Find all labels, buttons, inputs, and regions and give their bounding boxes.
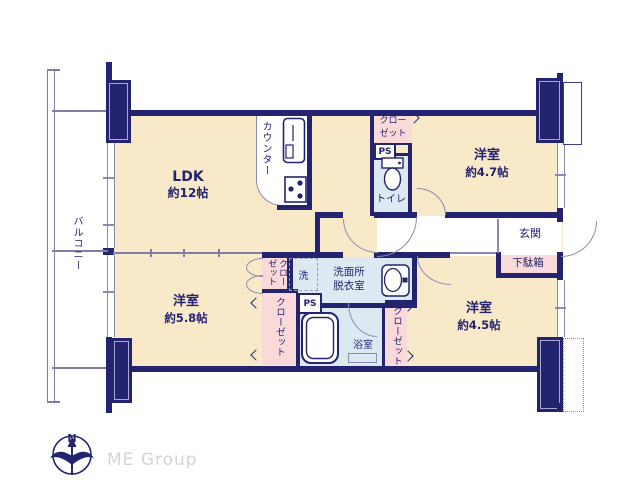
partition-tick bbox=[218, 249, 220, 257]
washroom-line2: 脱衣室 bbox=[318, 280, 380, 294]
brand-logo-text: ME Group bbox=[107, 450, 198, 470]
window bbox=[107, 255, 115, 337]
wall-segment bbox=[382, 303, 385, 366]
pillar bbox=[106, 80, 131, 143]
compass-north-icon: N bbox=[46, 428, 98, 480]
room-bedroom-se-name: 洋室 bbox=[429, 301, 529, 318]
closet-sw-long-label: クローゼット bbox=[272, 297, 286, 357]
room-ldk-label: LDK 約12帖 bbox=[138, 168, 238, 202]
balcony-outer-rail bbox=[47, 70, 55, 403]
balcony-label: バルコニー bbox=[69, 216, 84, 271]
balcony-line bbox=[47, 401, 60, 403]
room-bedroom-sw-label: 洋室 約5.8帖 bbox=[136, 294, 236, 326]
washbasin-icon bbox=[381, 264, 411, 298]
pillar bbox=[536, 78, 563, 143]
corridor-edge-line bbox=[450, 252, 496, 254]
window-tick bbox=[555, 307, 566, 309]
window-tick bbox=[103, 177, 114, 179]
wall-segment bbox=[408, 143, 412, 216]
bathtub-icon bbox=[300, 311, 340, 365]
shoe-cabinet-label: 下駄箱 bbox=[498, 257, 558, 271]
window bbox=[557, 280, 565, 337]
wall-segment bbox=[445, 212, 563, 218]
window bbox=[107, 143, 115, 248]
floorplan-canvas: PS PS 洗 LDK 約12帖 洋室 約4.7帖 bbox=[0, 0, 640, 480]
room-ldk-size: 約12帖 bbox=[138, 186, 238, 202]
room-bedroom-ne-label: 洋室 約4.7帖 bbox=[432, 148, 542, 180]
washer-space: 洗 bbox=[289, 258, 318, 291]
toilet-icon bbox=[380, 157, 406, 193]
entrance-label: 玄関 bbox=[500, 227, 560, 241]
closet-ne-label: クロー ゼット bbox=[374, 115, 412, 141]
washer-label: 洗 bbox=[299, 267, 309, 282]
wall-segment bbox=[496, 273, 562, 278]
closet-se-label: クローゼット bbox=[389, 306, 403, 366]
counter-label: カウンター bbox=[258, 121, 273, 176]
closet-ne-line2: ゼット bbox=[374, 128, 412, 141]
balcony-line bbox=[52, 367, 108, 369]
wall-segment bbox=[113, 110, 563, 116]
pillar-bar bbox=[557, 403, 563, 412]
wall-segment bbox=[315, 216, 320, 256]
room-bedroom-sw-name: 洋室 bbox=[136, 294, 236, 311]
washroom-label: 洗面所 脱衣室 bbox=[318, 266, 380, 293]
pillar bbox=[537, 337, 563, 412]
partition-line bbox=[113, 252, 262, 254]
room-bedroom-ne-size: 約4.7帖 bbox=[432, 165, 542, 180]
balcony-line bbox=[47, 69, 60, 71]
pipe-space-label: PS bbox=[303, 299, 316, 309]
room-bedroom-ne-name: 洋室 bbox=[432, 148, 542, 165]
closet-sw-small-label: クローゼット bbox=[263, 259, 287, 292]
wall-segment bbox=[277, 205, 312, 210]
toilet-label: トイレ bbox=[374, 193, 408, 206]
meter-box-dotted bbox=[563, 338, 584, 412]
kitchen-sink-icon bbox=[282, 117, 307, 164]
room-bedroom-se-size: 約4.5帖 bbox=[429, 318, 529, 333]
pipe-space-label: PS bbox=[378, 147, 391, 157]
washroom-line1: 洗面所 bbox=[318, 266, 380, 280]
closet-ne-line1: クロー bbox=[374, 115, 412, 128]
room-bedroom-se-label: 洋室 約4.5帖 bbox=[429, 301, 529, 333]
pillar bbox=[111, 338, 132, 403]
room-ldk-name: LDK bbox=[138, 168, 238, 186]
bathroom-label: 浴室 bbox=[343, 339, 383, 352]
room-bedroom-sw-size: 約5.8帖 bbox=[136, 311, 236, 326]
wall-segment bbox=[557, 208, 563, 222]
pipe-space-outline bbox=[563, 82, 582, 145]
window-tick bbox=[103, 291, 114, 293]
window bbox=[557, 143, 565, 208]
partition-tick bbox=[150, 249, 152, 257]
window-tick bbox=[555, 174, 566, 176]
wall-segment bbox=[412, 252, 417, 308]
wall-segment bbox=[113, 366, 563, 372]
door-arc-entrance bbox=[561, 221, 597, 257]
bath-threshold bbox=[348, 353, 377, 363]
window-tick bbox=[103, 224, 114, 226]
entrance-step-line bbox=[497, 219, 499, 253]
partition-tick bbox=[183, 249, 185, 257]
balcony-line bbox=[52, 110, 108, 112]
stove-icon bbox=[284, 176, 308, 204]
